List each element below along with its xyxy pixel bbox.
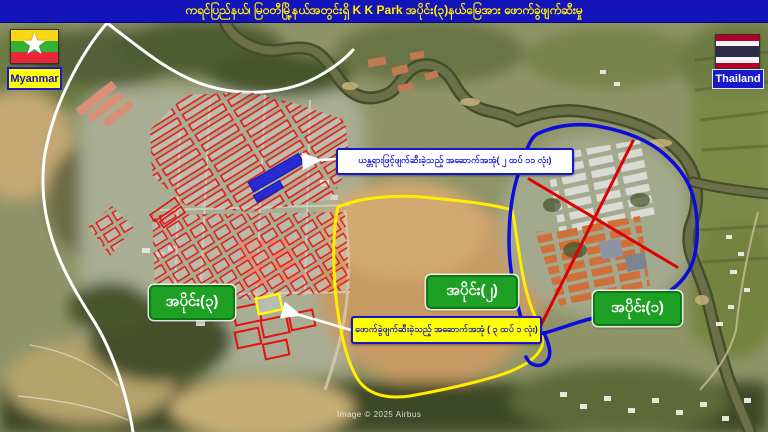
annotated-satellite-image: ကရင်ပြည်နယ်၊ မြဝတီမြို့နယ်အတွင်းရှိ K K … xyxy=(0,0,768,432)
highlight-building-yellow xyxy=(256,294,283,315)
satellite-map xyxy=(0,0,768,432)
myanmar-flag-star-icon: ★ xyxy=(11,28,58,61)
callout-machine-demolished: ယန္တရားဖြင့်ဖျက်ဆီးခဲ့သည့် အဆောက်အအုံ( ၂… xyxy=(336,148,574,175)
myanmar-flag: ★ xyxy=(10,29,59,64)
thailand-label: Thailand xyxy=(712,69,764,89)
zone-label-part1: အပိုင်း(၁) xyxy=(593,291,682,326)
page-title: ကရင်ပြည်နယ်၊ မြဝတီမြို့နယ်အတွင်းရှိ K K … xyxy=(185,2,583,20)
myanmar-label: Myanmar xyxy=(7,67,62,90)
callout-blast-demolished: ဖောက်ခွဲဖျက်ဆီးခဲ့သည့် အဆောက်အအုံ ( ၃ ထပ… xyxy=(351,316,542,344)
zone-label-part3: အပိုင်း(၃) xyxy=(149,285,235,320)
title-bar: ကရင်ပြည်နယ်၊ မြဝတီမြို့နယ်အတွင်းရှိ K K … xyxy=(0,0,768,23)
zone-label-part2: အပိုင်း(၂) xyxy=(426,275,518,309)
thailand-flag xyxy=(715,34,760,69)
imagery-credit: Image © 2025 Airbus xyxy=(337,410,421,419)
